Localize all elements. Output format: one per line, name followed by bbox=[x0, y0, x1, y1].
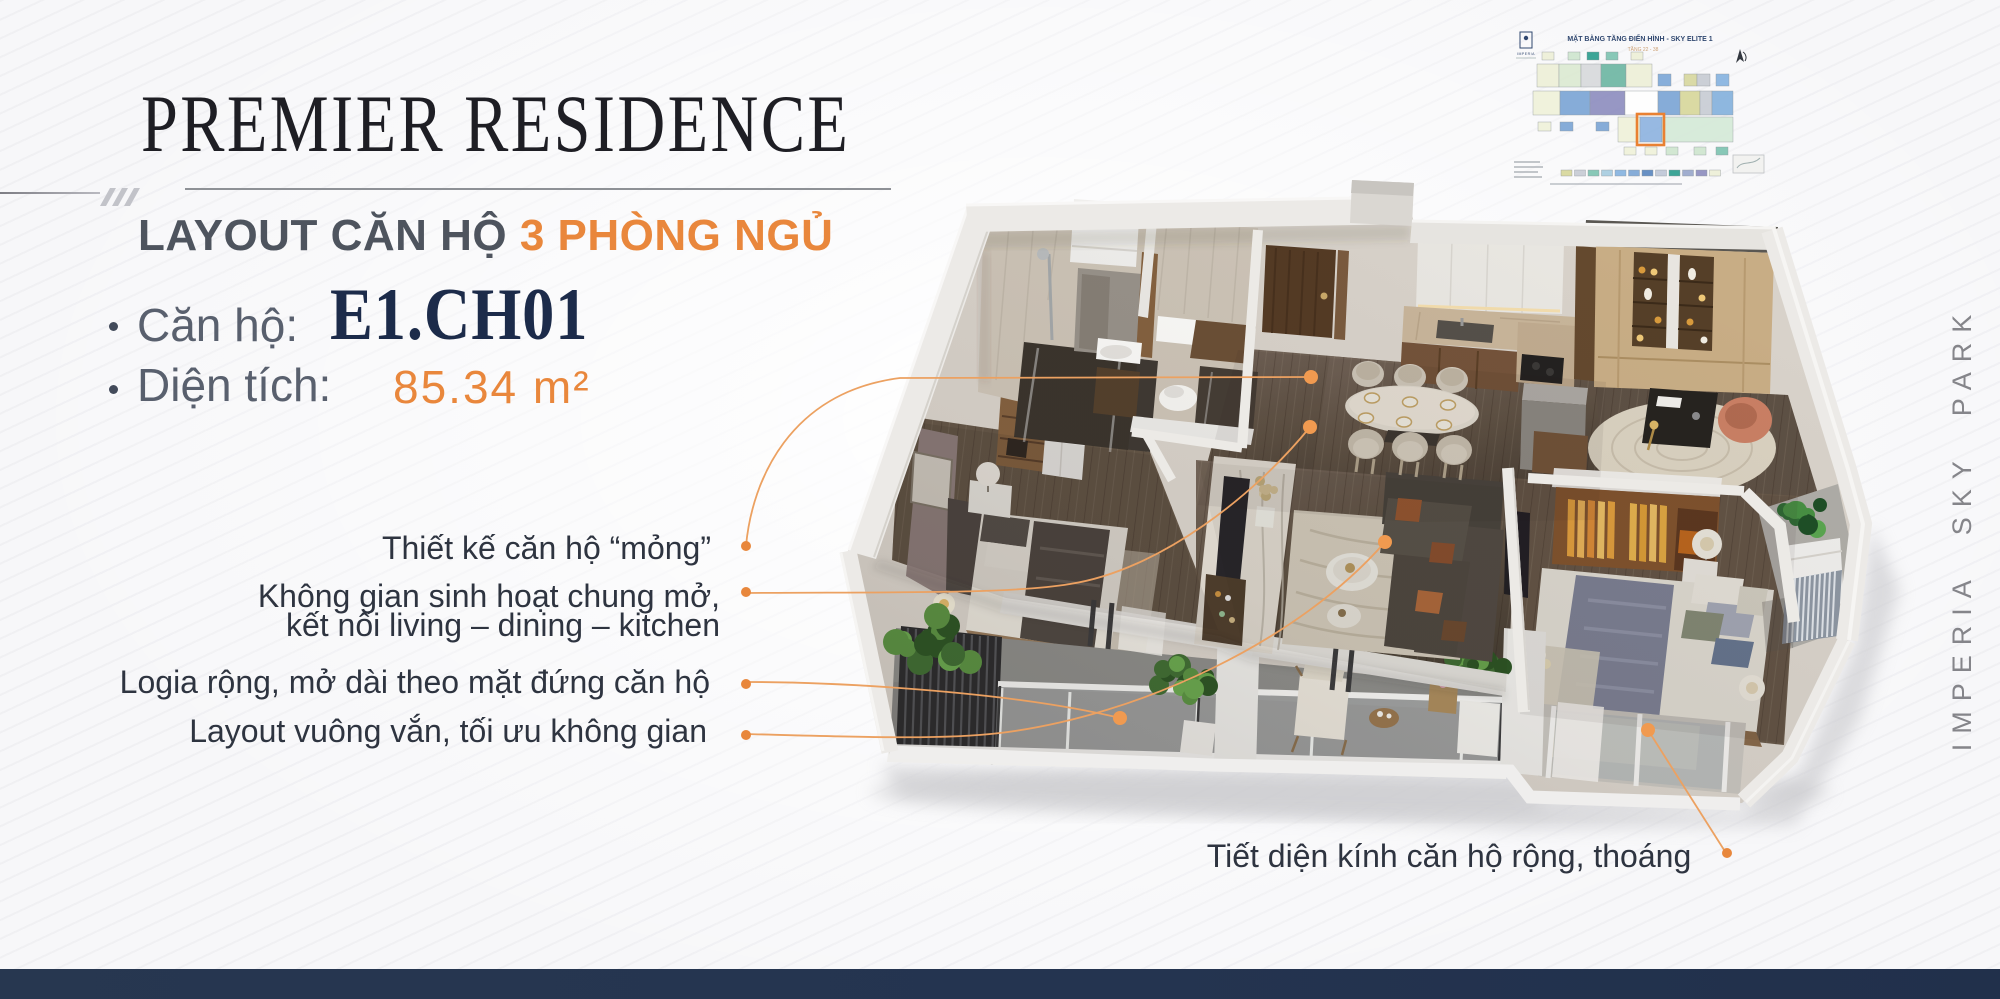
svg-text:IMPERIA SKY PARK: IMPERIA SKY PARK bbox=[1947, 305, 1977, 752]
